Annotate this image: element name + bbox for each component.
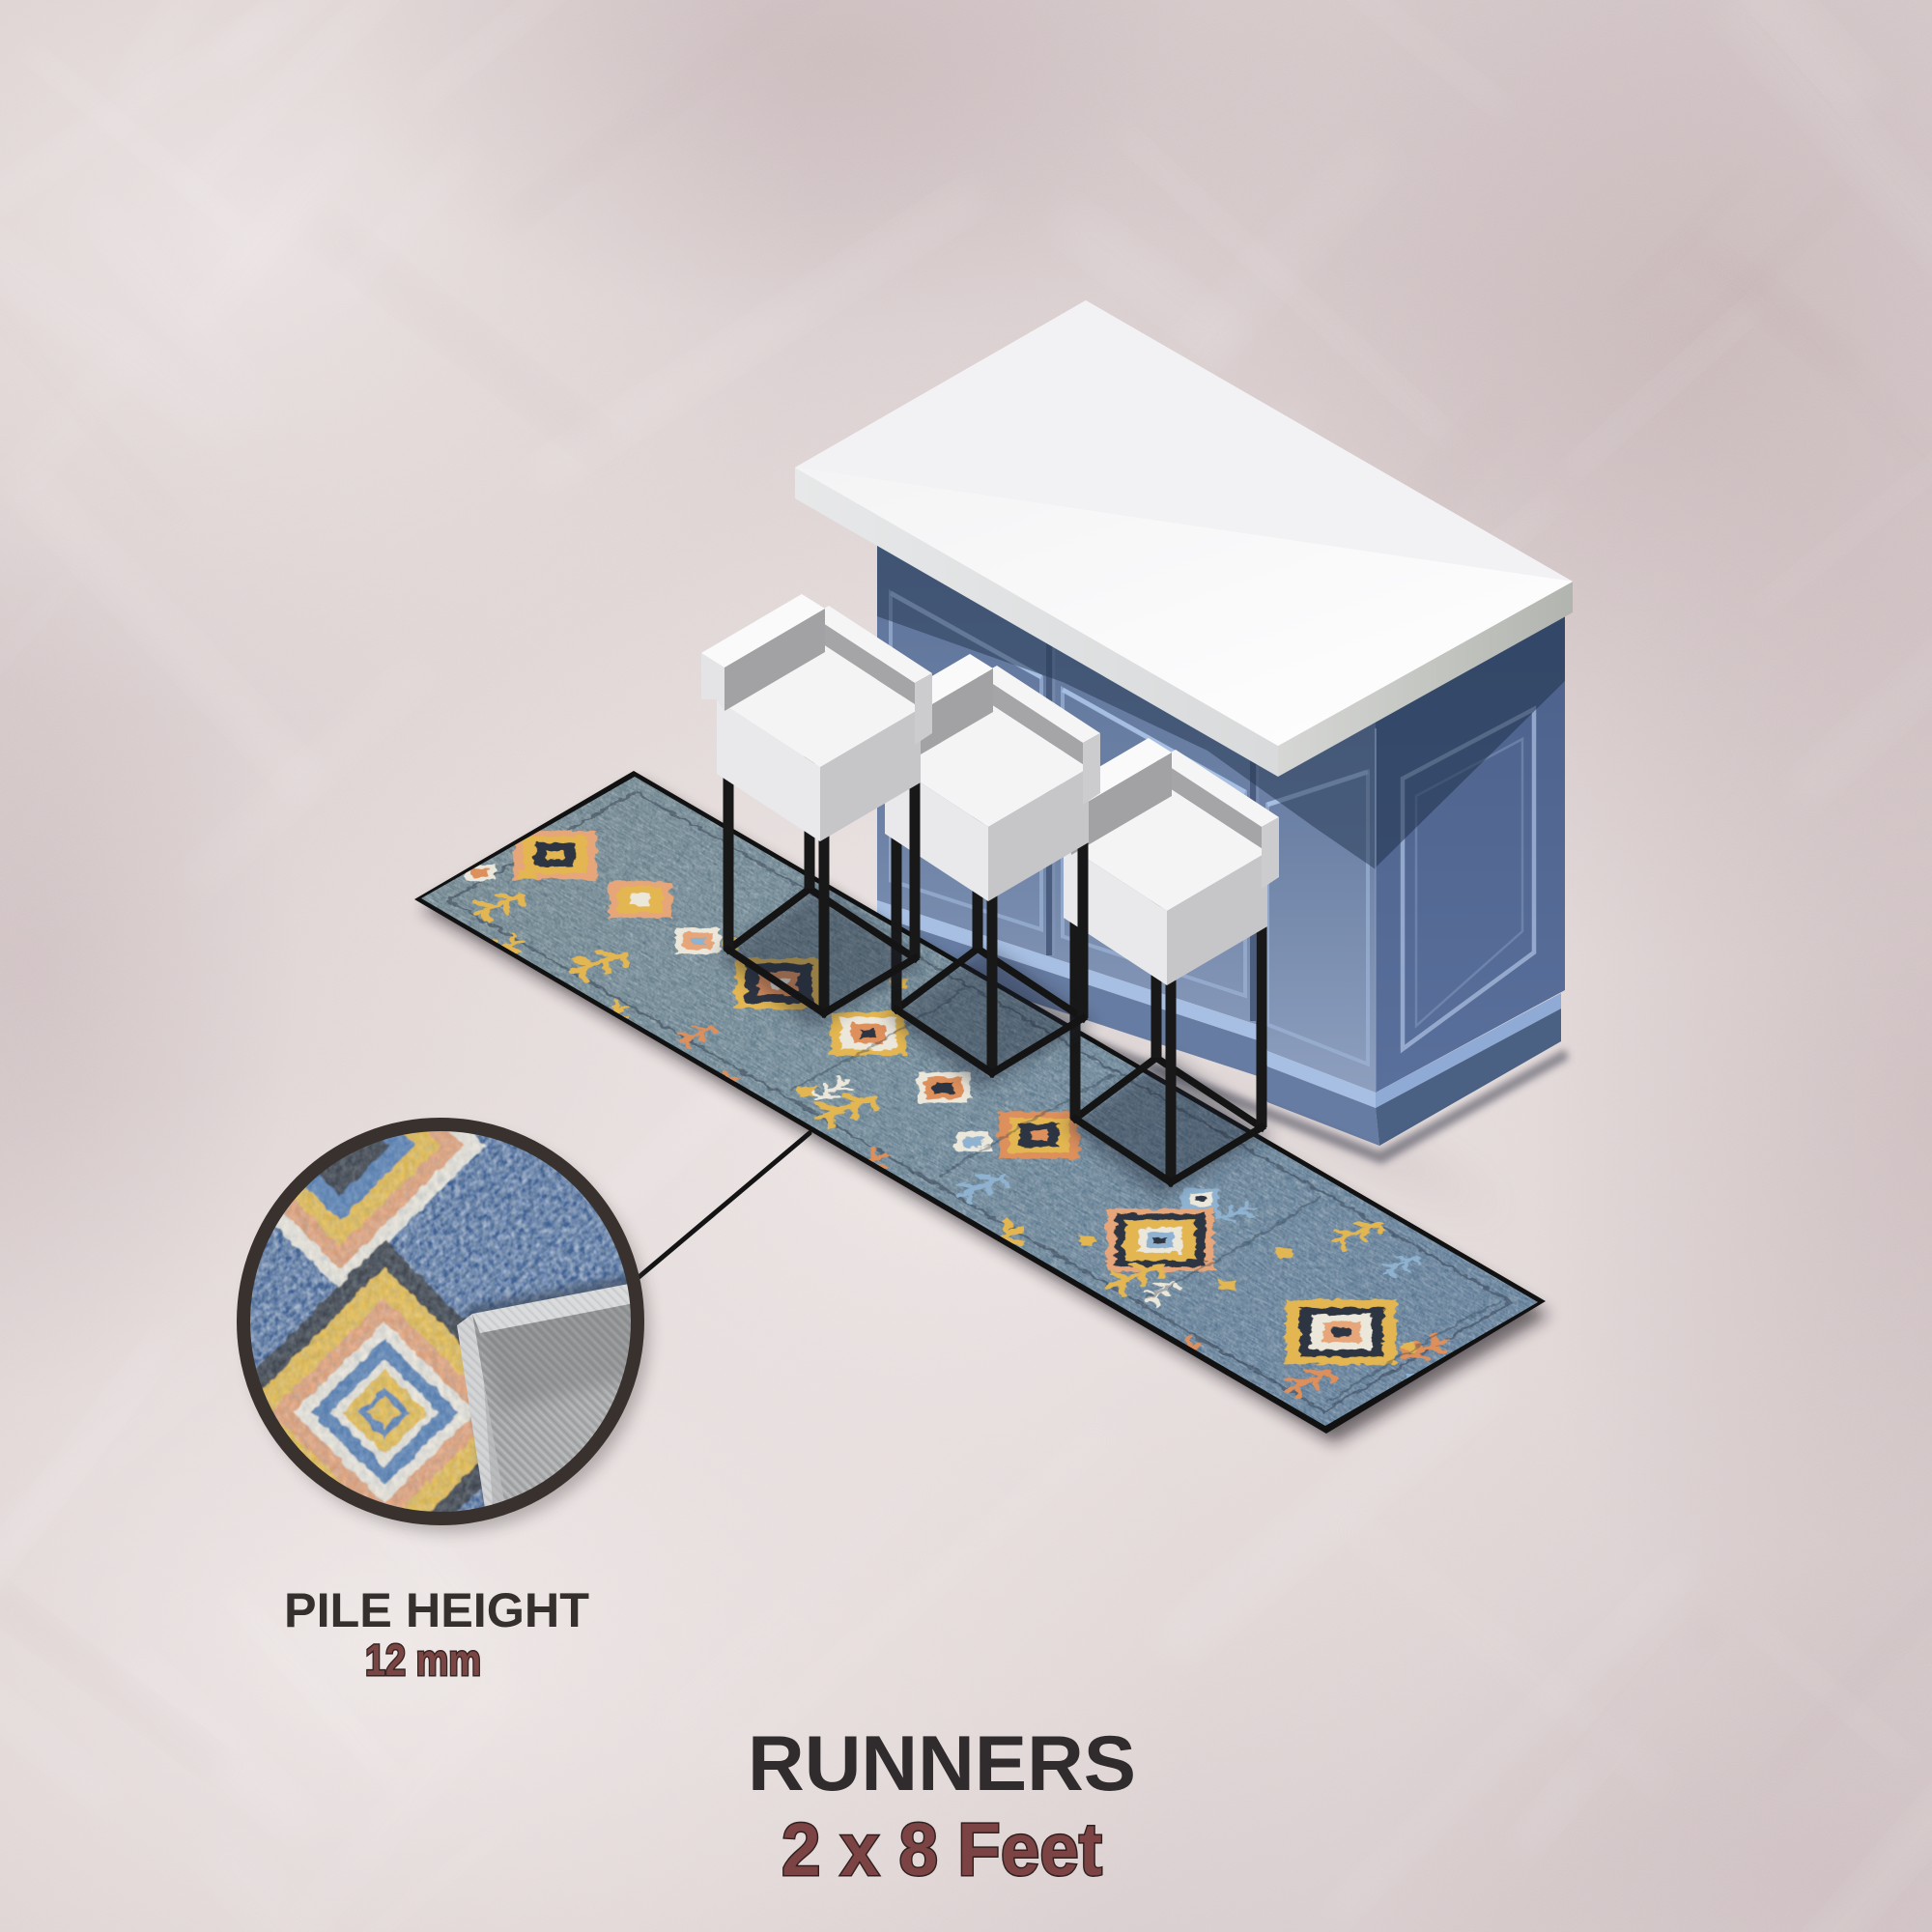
- svg-text:PILE HEIGHT: PILE HEIGHT: [284, 1583, 589, 1637]
- svg-text:2 x 8 Feet: 2 x 8 Feet: [781, 1808, 1102, 1891]
- svg-text:12 mm: 12 mm: [365, 1635, 481, 1685]
- svg-text:RUNNERS: RUNNERS: [748, 1720, 1136, 1807]
